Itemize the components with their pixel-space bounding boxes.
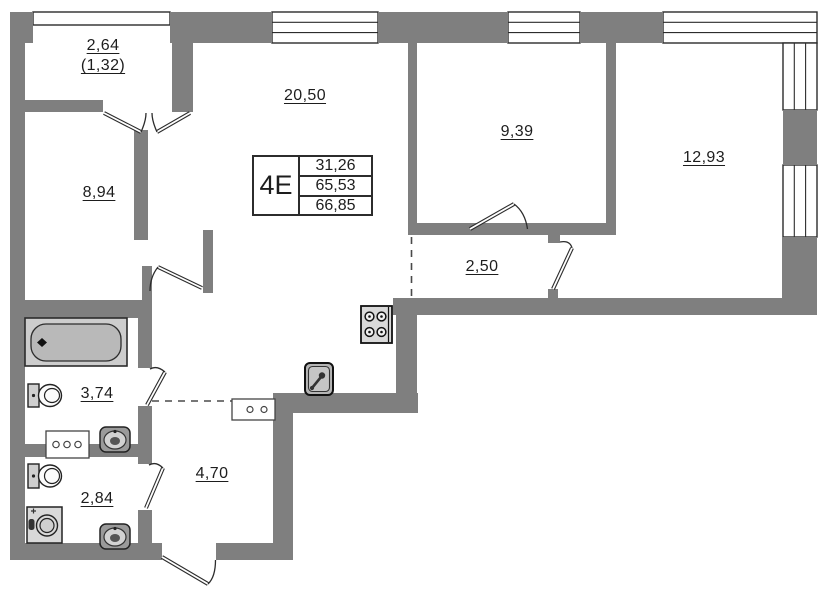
bathtub-icon bbox=[25, 318, 127, 366]
walls bbox=[10, 12, 817, 560]
balcony-french-door bbox=[104, 113, 190, 132]
window-bedroom-small bbox=[508, 12, 580, 43]
floor-plan-drawing bbox=[0, 0, 825, 600]
area-label-bedroom-large: 12,93 bbox=[683, 149, 725, 167]
area-label-balcony-reduced: (1,32) bbox=[81, 57, 125, 75]
sink-icon bbox=[100, 427, 130, 452]
area-label-wc: 2,84 bbox=[81, 490, 114, 508]
area-label-corridor: 2,50 bbox=[466, 258, 499, 276]
counter-icon bbox=[46, 431, 89, 458]
area-label-room: 8,94 bbox=[83, 184, 116, 202]
area-label-hall: 4,70 bbox=[196, 465, 229, 483]
door-bathroom bbox=[147, 368, 165, 405]
window-bedroom-large-right-lower bbox=[783, 165, 817, 237]
window-bedroom-large-top bbox=[663, 12, 817, 43]
area-label-bathroom: 3,74 bbox=[81, 385, 114, 403]
entrance-door bbox=[162, 557, 216, 584]
unit-areas: 31,26 65,53 66,85 bbox=[300, 157, 371, 214]
unit-type-label: 4E bbox=[254, 157, 300, 214]
area-label-bedroom-small: 9,39 bbox=[501, 123, 534, 141]
area-label-living-kitchen: 20,50 bbox=[284, 87, 326, 105]
counter-icon bbox=[232, 399, 275, 420]
window-living-room bbox=[272, 12, 378, 43]
kitchen-sink-icon bbox=[305, 363, 333, 395]
door-wc bbox=[146, 464, 163, 508]
stove-icon bbox=[361, 306, 392, 343]
washing-machine-icon bbox=[27, 507, 62, 543]
floor-plan: 2,64 (1,32) 20,50 9,39 12,93 8,94 2,50 3… bbox=[0, 0, 825, 600]
door-room bbox=[150, 267, 202, 291]
unit-info-table: 4E 31,26 65,53 66,85 bbox=[252, 155, 373, 216]
window-glazing-balcony bbox=[33, 12, 170, 25]
window-bedroom-large-right-upper bbox=[783, 43, 817, 110]
toilet-icon bbox=[28, 464, 62, 488]
sink-icon bbox=[100, 524, 130, 549]
unit-area: 65,53 bbox=[300, 175, 371, 195]
unit-living-area: 31,26 bbox=[300, 157, 371, 175]
toilet-icon bbox=[28, 384, 62, 407]
area-label-balcony: 2,64 bbox=[87, 37, 120, 55]
unit-total-area: 66,85 bbox=[300, 195, 371, 215]
door-bedroom-large bbox=[553, 242, 572, 289]
